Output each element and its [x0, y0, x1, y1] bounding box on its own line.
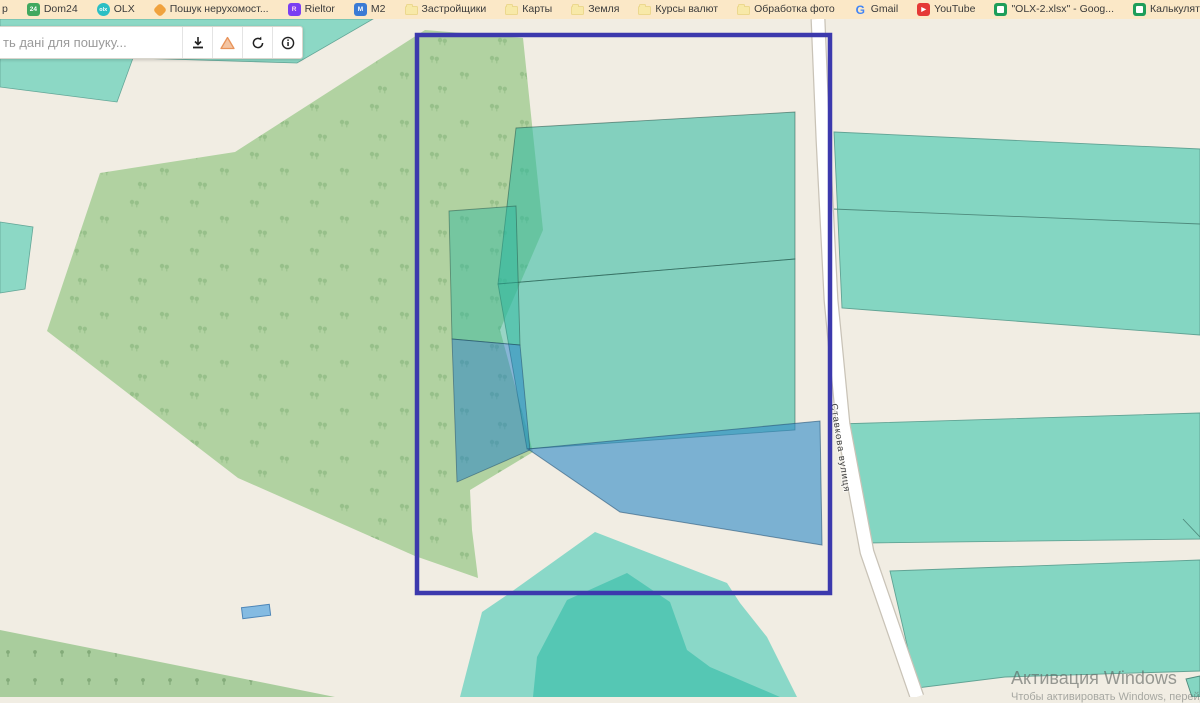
search-panel — [0, 26, 303, 59]
parcel-band-bottom-right[interactable] — [890, 560, 1200, 688]
bookmarks-bar: p 24Dom24 olxOLX Пошук нерухомост... RRi… — [0, 0, 1200, 19]
youtube-icon: ▶ — [917, 3, 930, 16]
bookmark-zastroyshchiki[interactable]: Застройщики — [405, 0, 487, 19]
search-input[interactable] — [0, 27, 182, 58]
folder-icon — [505, 6, 518, 15]
download-icon — [191, 36, 205, 50]
rieltor-icon: R — [288, 3, 301, 16]
parcel-teal-lower[interactable] — [498, 259, 795, 449]
download-button[interactable] — [182, 27, 212, 58]
refresh-icon — [251, 36, 265, 50]
info-button[interactable] — [272, 27, 302, 58]
warning-button[interactable] — [212, 27, 242, 58]
google-icon: G — [854, 3, 867, 16]
map-canvas[interactable]: Ставкова вулиця — [0, 19, 1200, 697]
search-realty-icon — [153, 2, 167, 16]
bookmark-zemlya[interactable]: Земля — [571, 0, 619, 19]
bookmark-obrabotka-foto[interactable]: Обработка фото — [737, 0, 835, 19]
parcel-green-overlap[interactable] — [449, 206, 520, 345]
bookmark-karty[interactable]: Карты — [505, 0, 552, 19]
parcel-band-top-right[interactable] — [834, 132, 1200, 335]
dom24-icon: 24 — [27, 3, 40, 16]
bookmark-kalkulyator[interactable]: Калькулятор - Goo... — [1133, 0, 1200, 19]
bookmark-rieltor[interactable]: RRieltor — [288, 0, 335, 19]
bookmark-olx[interactable]: olxOLX — [97, 0, 135, 19]
bookmark-gmail[interactable]: GGmail — [854, 0, 898, 19]
info-icon — [281, 36, 295, 50]
parcel-band-mid-right[interactable] — [838, 413, 1200, 543]
warning-icon — [220, 36, 235, 50]
folder-icon — [737, 6, 750, 15]
folder-icon — [405, 6, 418, 15]
m2-icon: M — [354, 3, 367, 16]
refresh-button[interactable] — [242, 27, 272, 58]
folder-icon — [571, 6, 584, 15]
bookmark-dom24[interactable]: 24Dom24 — [27, 0, 78, 19]
sheets-icon — [1133, 3, 1146, 16]
folder-icon — [638, 6, 651, 15]
parcel-teal-upper[interactable] — [498, 112, 795, 284]
bookmark-youtube[interactable]: ▶YouTube — [917, 0, 975, 19]
bookmark-olx2-xlsx[interactable]: "OLX-2.xlsx" - Goog... — [994, 0, 1114, 19]
bookmark-cut[interactable]: p — [2, 0, 8, 19]
bookmark-poshuk[interactable]: Пошук нерухомост... — [154, 0, 269, 19]
sheets-icon — [994, 3, 1007, 16]
bookmark-kursy-valyut[interactable]: Курсы валют — [638, 0, 718, 19]
bookmark-m2[interactable]: MM2 — [354, 0, 386, 19]
olx-icon: olx — [97, 3, 110, 16]
